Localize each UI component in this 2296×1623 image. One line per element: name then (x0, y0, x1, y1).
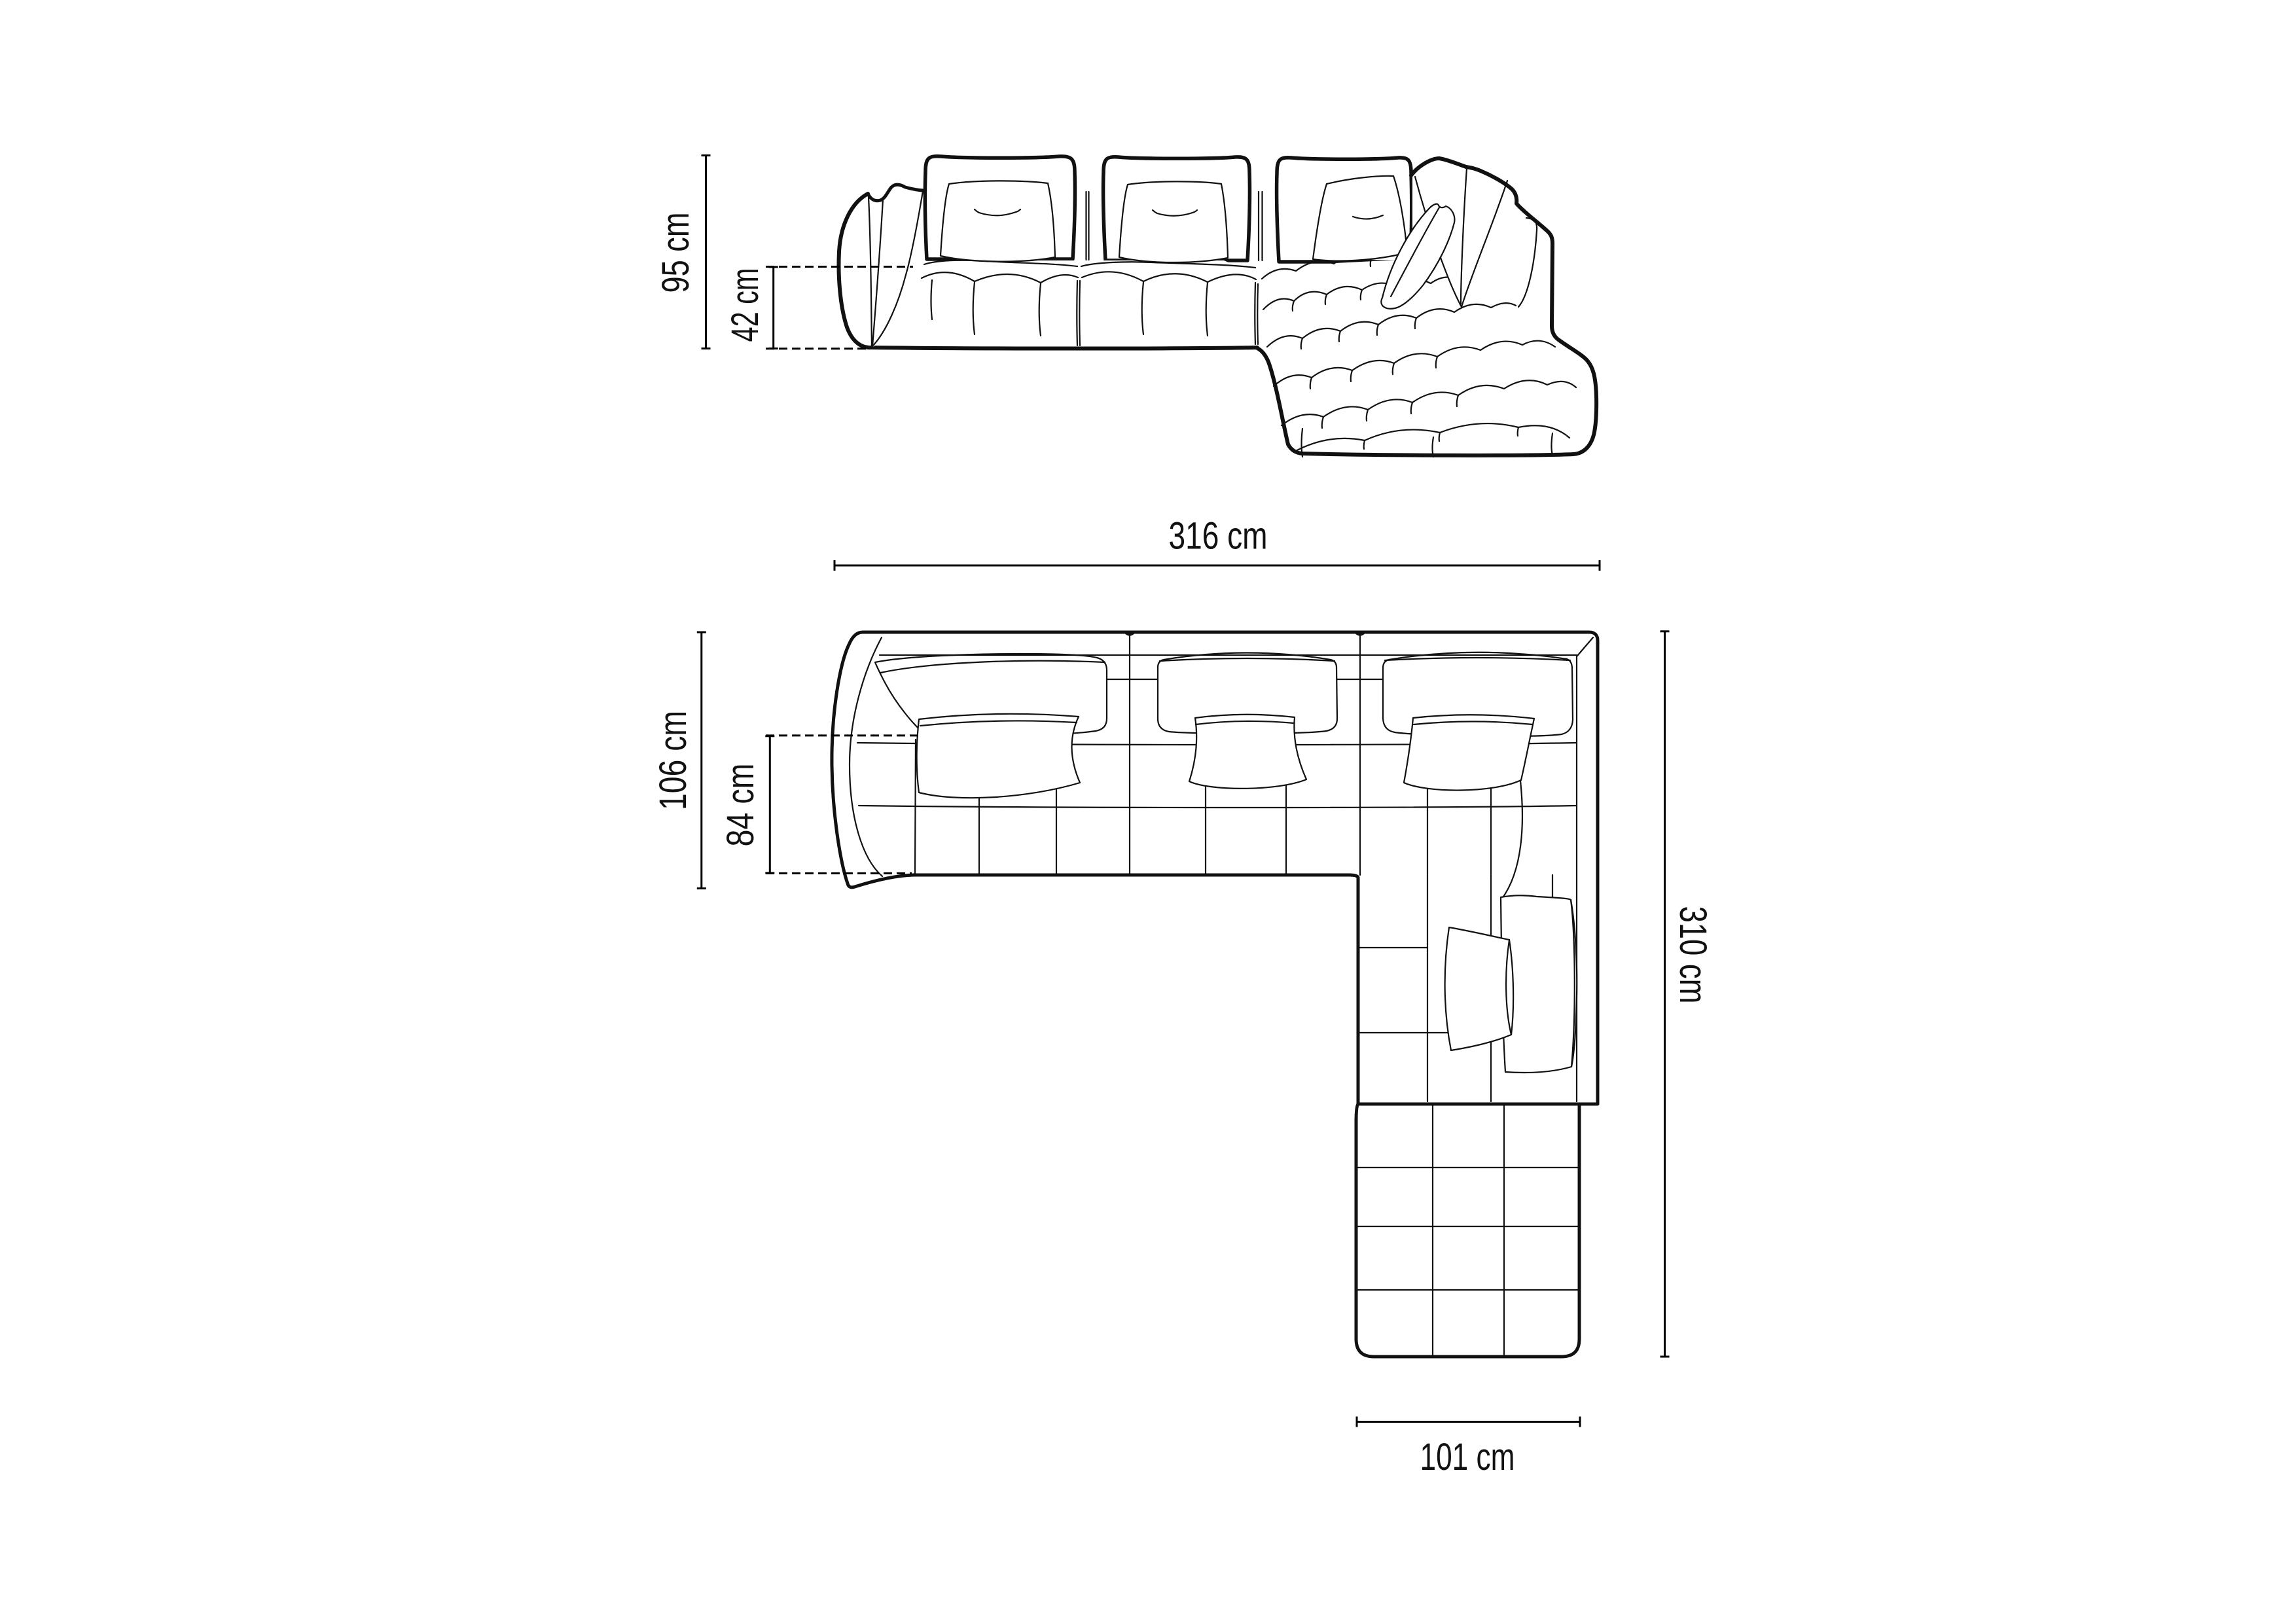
svg-text:101 cm: 101 cm (1420, 1436, 1515, 1478)
svg-text:316 cm: 316 cm (1169, 515, 1268, 558)
svg-text:84 cm: 84 cm (719, 764, 762, 847)
svg-text:106 cm: 106 cm (652, 711, 694, 810)
svg-text:95 cm: 95 cm (655, 213, 697, 293)
svg-text:42 cm: 42 cm (724, 268, 766, 342)
svg-text:310 cm: 310 cm (1672, 906, 1714, 1004)
